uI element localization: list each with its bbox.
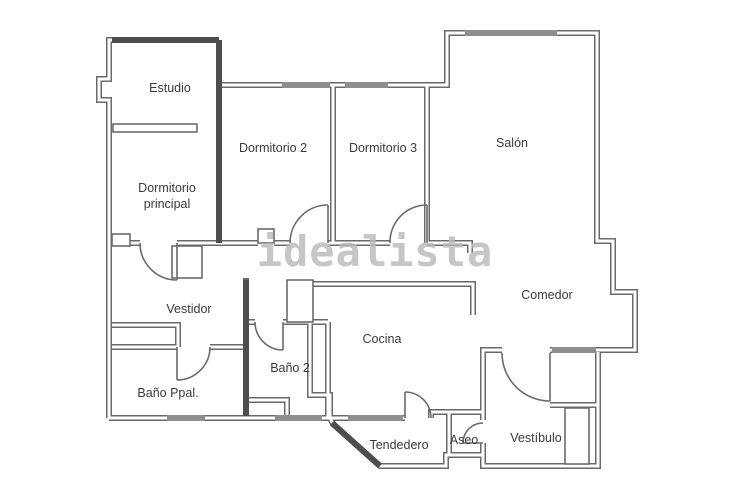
door-bano-2 <box>255 322 283 350</box>
pillar-dormitorio-principal <box>112 234 130 246</box>
room-label-tendedero: Tendedero <box>369 438 428 452</box>
room-label-vestidor: Vestidor <box>166 302 211 316</box>
room-label-comedor: Comedor <box>521 288 572 302</box>
door-cocina <box>405 392 431 418</box>
door-entrance <box>502 353 550 401</box>
room-label-bano-2: Baño 2 <box>270 361 310 375</box>
room-label-dormitorio-principal-line2: principal <box>144 197 191 211</box>
door-bano-ppal <box>177 347 210 380</box>
room-label-aseo: Aseo <box>450 433 479 447</box>
room-label-dormitorio-2: Dormitorio 2 <box>239 141 307 155</box>
room-label-dormitorio-3: Dormitorio 3 <box>349 141 417 155</box>
floor-plan: idealista Estudio Dormitorio principal D… <box>0 0 750 500</box>
room-label-salon: Salón <box>496 136 528 150</box>
room-label-vestibulo: Vestíbulo <box>510 431 561 445</box>
room-label-estudio: Estudio <box>149 81 191 95</box>
closet-corridor <box>287 280 313 322</box>
room-label-dormitorio-principal-line1: Dormitorio <box>138 181 196 195</box>
closet-vestibulo <box>565 408 589 464</box>
room-label-bano-ppal: Baño Ppal. <box>137 386 198 400</box>
windows <box>167 33 596 418</box>
room-label-cocina: Cocina <box>363 332 402 346</box>
watermark: idealista <box>257 227 494 276</box>
floor-plan-page: idealista Estudio Dormitorio principal D… <box>0 0 750 500</box>
partition-estudio <box>113 124 197 132</box>
fixtures <box>112 124 589 464</box>
